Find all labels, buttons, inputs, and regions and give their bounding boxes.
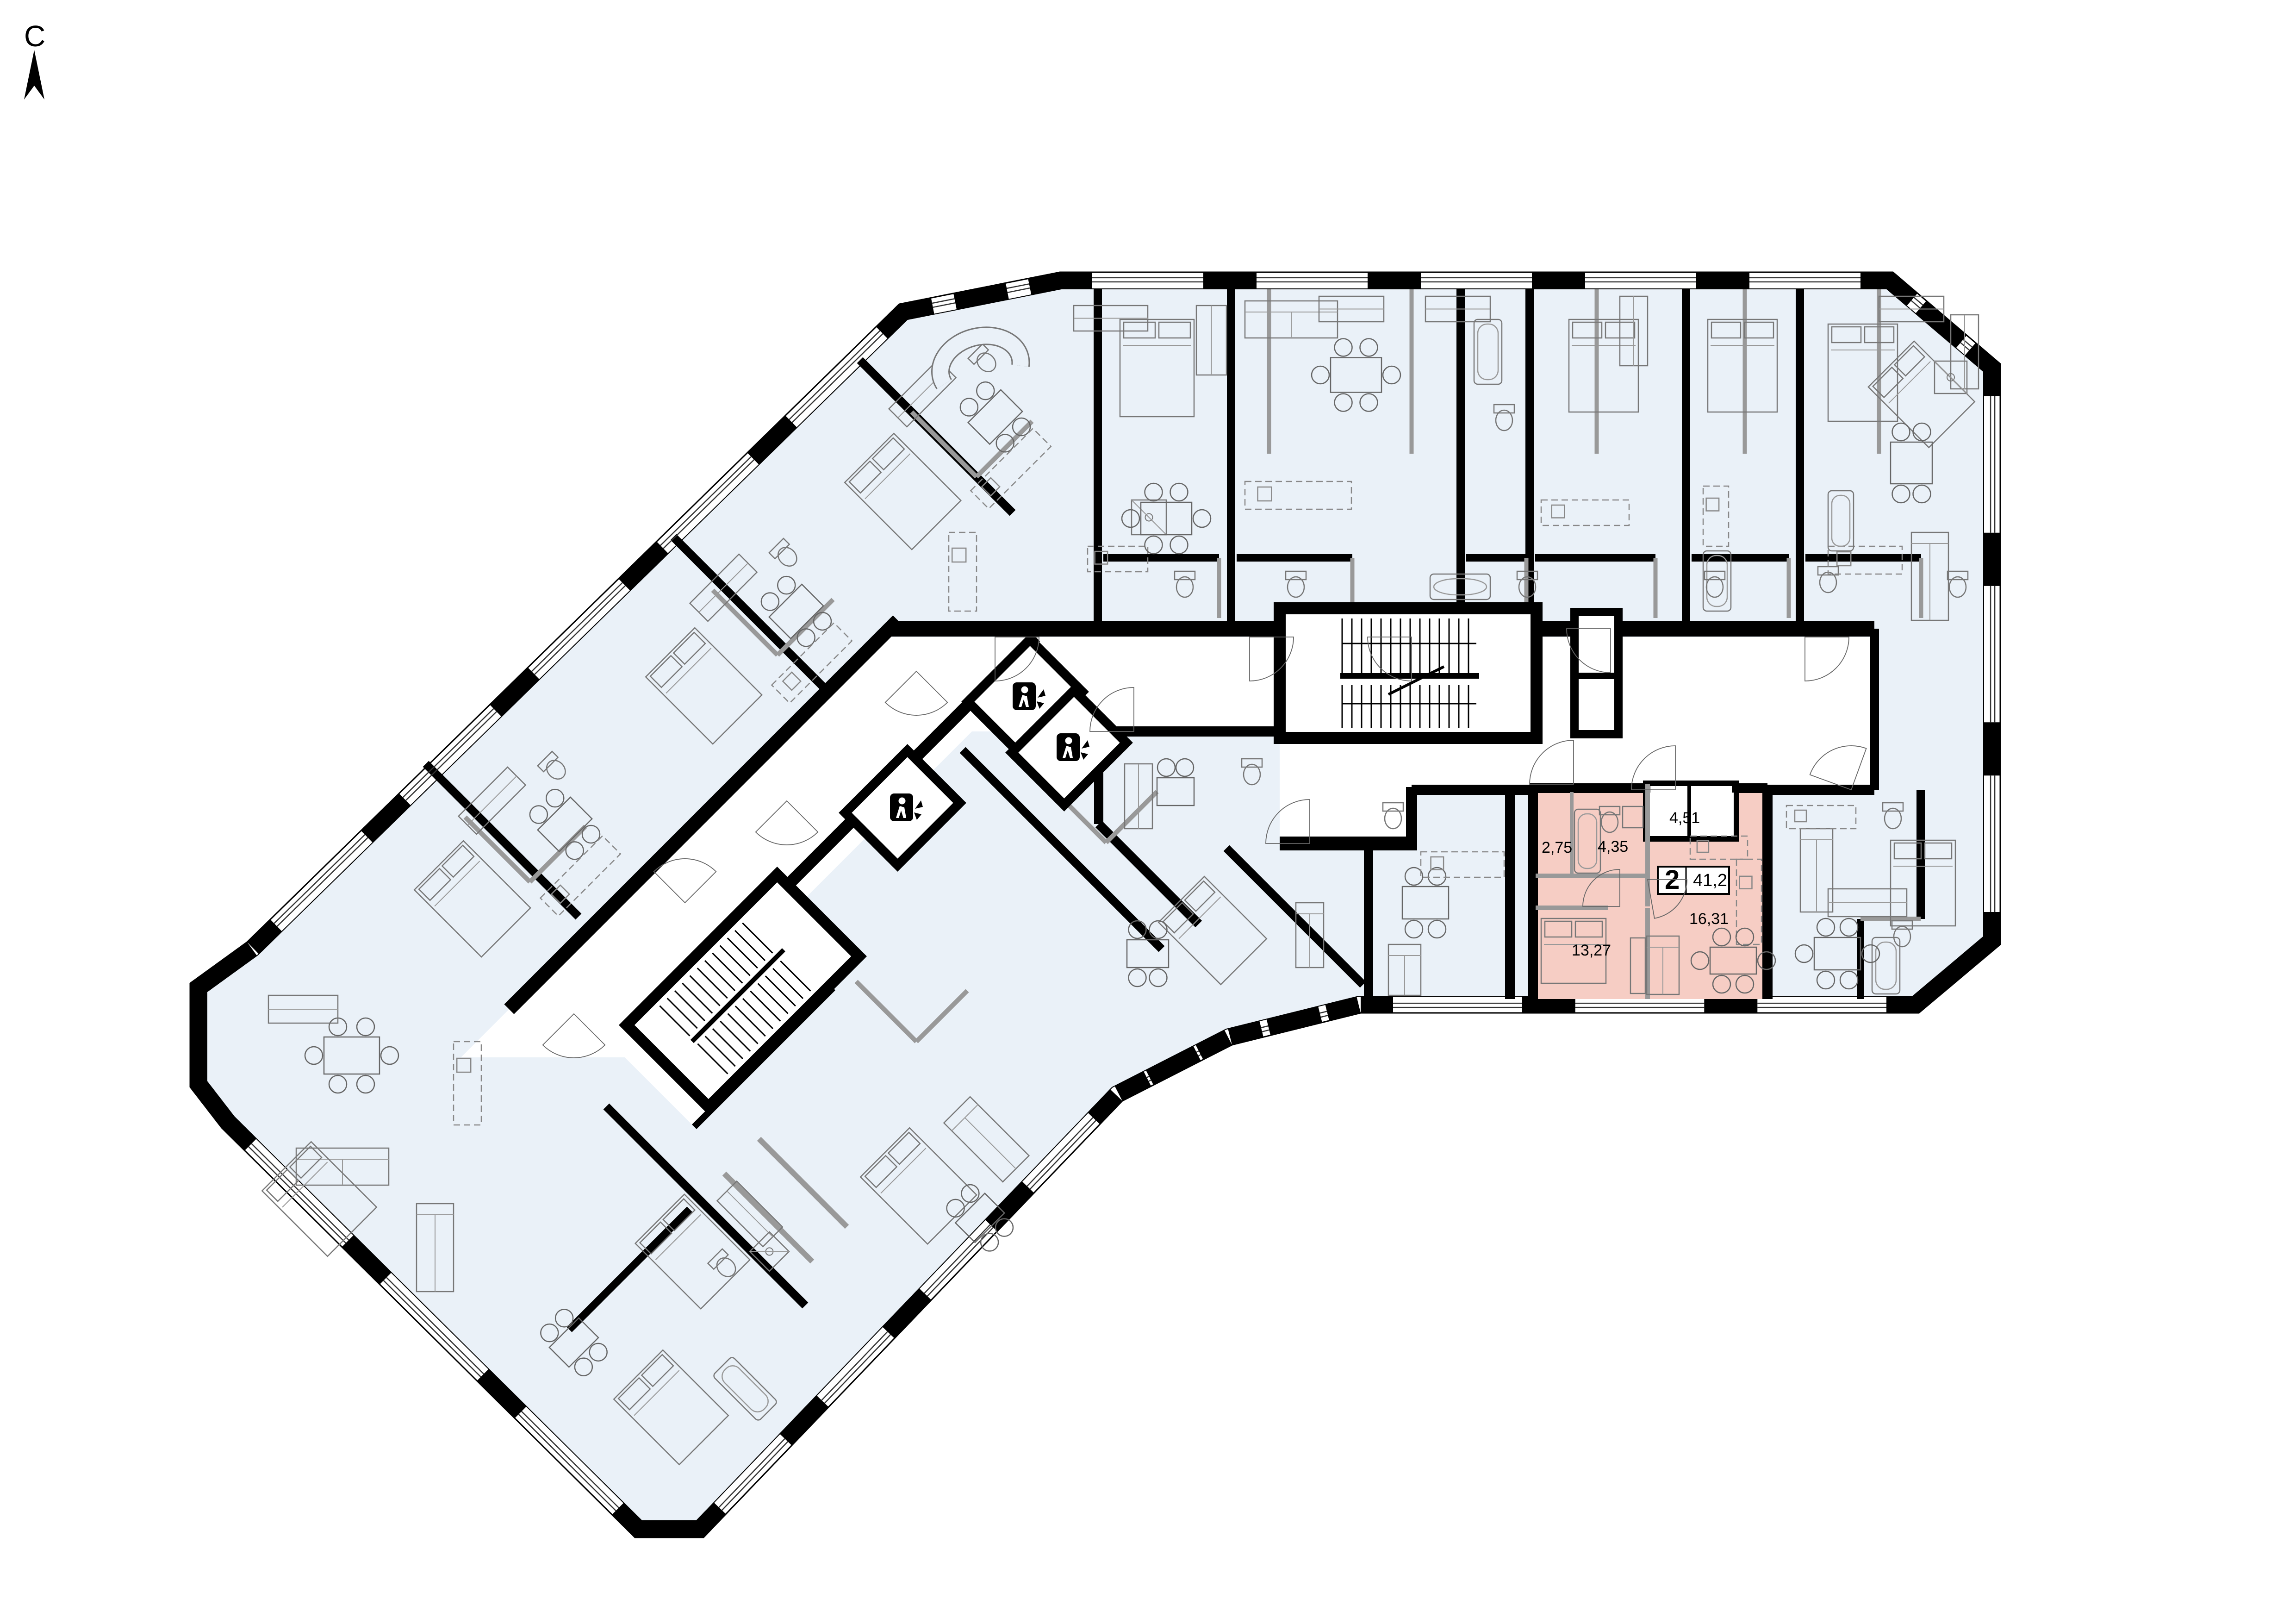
svg-text:4,51: 4,51 (1669, 809, 1700, 827)
svg-text:16,31: 16,31 (1689, 910, 1729, 928)
svg-text:13,27: 13,27 (1572, 942, 1611, 959)
svg-text:С: С (24, 19, 45, 53)
svg-text:2,75: 2,75 (1542, 839, 1572, 856)
svg-text:4,35: 4,35 (1598, 838, 1628, 856)
svg-text:41,2: 41,2 (1693, 871, 1727, 890)
